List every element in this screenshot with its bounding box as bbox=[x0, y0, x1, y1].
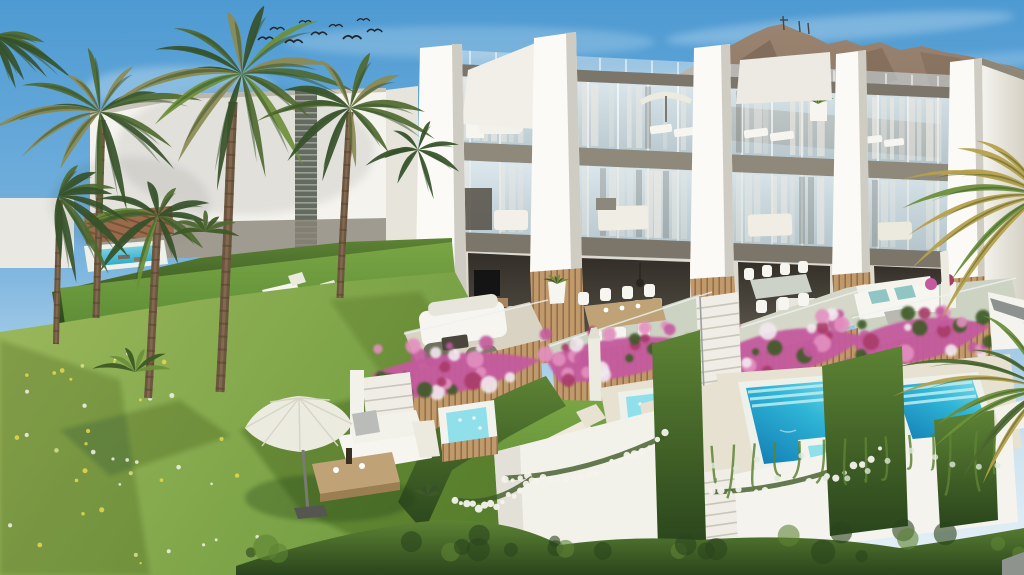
meadow-flower bbox=[37, 543, 42, 548]
antenna-mast bbox=[799, 21, 800, 32]
meadow-flower bbox=[54, 448, 59, 453]
bottle bbox=[346, 448, 352, 464]
meadow-flower bbox=[210, 483, 213, 486]
meadow-flower bbox=[176, 465, 181, 470]
meadow-flower bbox=[235, 473, 239, 477]
meadow-flower bbox=[113, 360, 116, 363]
hot-tub-unit1 bbox=[438, 400, 498, 462]
meadow-flower bbox=[8, 523, 12, 527]
rooftop-planter bbox=[810, 102, 827, 121]
meadow-flower bbox=[134, 553, 138, 557]
cup bbox=[333, 467, 339, 473]
meadow-flower bbox=[15, 435, 20, 440]
meadow-flower bbox=[75, 479, 79, 483]
sofa-cushion bbox=[352, 410, 380, 436]
meadow-flower bbox=[25, 390, 29, 394]
meadow-flower bbox=[99, 507, 104, 512]
meadow-flower bbox=[169, 393, 174, 398]
meadow-flower bbox=[129, 471, 133, 475]
bed-headboard bbox=[596, 198, 616, 210]
meadow-flower bbox=[83, 468, 88, 473]
bed bbox=[878, 221, 913, 240]
meadow-flower bbox=[60, 368, 65, 373]
meadow-flower bbox=[160, 478, 164, 482]
meadow-flower bbox=[81, 512, 85, 516]
meadow-flower bbox=[52, 371, 56, 375]
bed bbox=[748, 213, 793, 237]
closed-parasol bbox=[588, 336, 602, 412]
meadow-flower bbox=[111, 457, 114, 460]
meadow-flower bbox=[162, 360, 167, 365]
meadow-flower bbox=[215, 538, 218, 541]
meadow-flower bbox=[118, 483, 121, 486]
planter-flowers bbox=[925, 278, 937, 290]
meadow-flower bbox=[25, 373, 29, 377]
wardrobe bbox=[464, 188, 492, 230]
property-render bbox=[0, 0, 1024, 575]
bed bbox=[494, 210, 528, 230]
meadow-flower bbox=[69, 378, 72, 381]
tv-screen bbox=[474, 270, 500, 296]
meadow-flower bbox=[91, 450, 96, 455]
antenna-mast bbox=[808, 23, 809, 34]
sloped-roof-plane bbox=[736, 52, 832, 104]
pendant-lamp-shade bbox=[636, 279, 644, 287]
neighbour-lounger bbox=[118, 255, 130, 260]
meadow-flower bbox=[81, 364, 85, 368]
meadow-flower bbox=[125, 458, 129, 462]
meadow-flower bbox=[220, 437, 224, 441]
meadow-flower bbox=[139, 562, 141, 564]
meadow-flower bbox=[84, 442, 87, 445]
antenna-mast bbox=[783, 16, 784, 30]
meadow-flower bbox=[82, 404, 86, 408]
meadow-flower bbox=[135, 460, 139, 464]
cup bbox=[359, 463, 365, 469]
meadow-flower bbox=[25, 433, 29, 437]
meadow-flower bbox=[167, 549, 171, 553]
meadow-flower bbox=[139, 398, 142, 401]
meadow-flower bbox=[86, 429, 90, 433]
meadow-flower bbox=[202, 543, 205, 546]
